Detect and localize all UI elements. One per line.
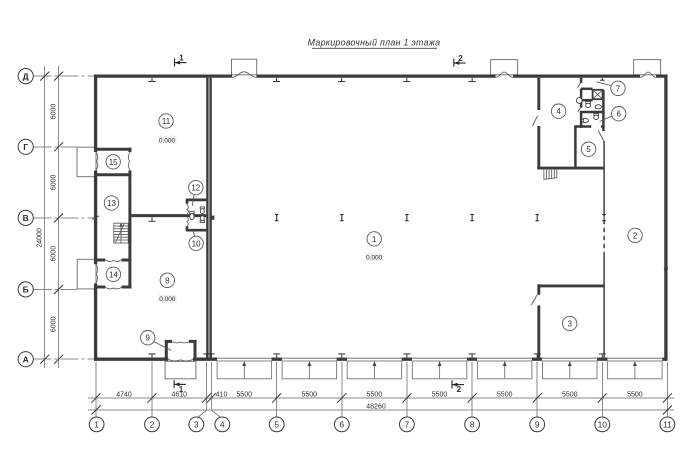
- svg-text:0.000: 0.000: [159, 137, 176, 144]
- svg-text:0.000: 0.000: [159, 296, 176, 303]
- svg-text:6000: 6000: [51, 246, 58, 262]
- svg-text:9: 9: [535, 420, 540, 430]
- svg-text:3: 3: [567, 320, 572, 329]
- svg-text:9: 9: [145, 334, 150, 343]
- svg-text:5500: 5500: [627, 392, 643, 399]
- svg-text:1: 1: [372, 235, 377, 244]
- svg-text:10: 10: [598, 420, 608, 430]
- svg-text:6000: 6000: [51, 316, 58, 332]
- svg-text:Г: Г: [23, 142, 28, 152]
- svg-text:4740: 4740: [116, 392, 132, 399]
- svg-text:2: 2: [457, 385, 462, 394]
- svg-text:5500: 5500: [302, 392, 318, 399]
- svg-text:7: 7: [405, 420, 410, 430]
- svg-text:10: 10: [192, 239, 201, 248]
- svg-text:2: 2: [633, 231, 638, 240]
- svg-text:11: 11: [162, 117, 171, 126]
- svg-text:В: В: [23, 213, 29, 223]
- svg-text:5500: 5500: [432, 392, 448, 399]
- svg-text:11: 11: [663, 420, 672, 430]
- svg-text:4: 4: [556, 107, 561, 116]
- svg-text:13: 13: [107, 199, 116, 208]
- svg-text:14: 14: [109, 270, 118, 279]
- svg-text:24000: 24000: [37, 228, 44, 248]
- svg-text:Д: Д: [23, 71, 29, 81]
- svg-text:4: 4: [220, 420, 225, 430]
- svg-text:48260: 48260: [366, 404, 386, 411]
- svg-text:3: 3: [194, 420, 199, 430]
- svg-text:5: 5: [586, 145, 591, 154]
- svg-text:А: А: [23, 355, 29, 365]
- svg-text:5500: 5500: [497, 392, 513, 399]
- svg-text:12: 12: [191, 184, 200, 193]
- svg-text:410: 410: [216, 392, 228, 399]
- svg-text:1: 1: [94, 420, 99, 430]
- svg-text:6000: 6000: [51, 104, 58, 120]
- svg-text:5500: 5500: [367, 392, 383, 399]
- svg-text:7: 7: [616, 84, 621, 93]
- svg-text:8: 8: [165, 276, 170, 285]
- svg-text:5500: 5500: [562, 392, 578, 399]
- svg-text:15: 15: [109, 158, 118, 167]
- svg-text:2: 2: [150, 420, 155, 430]
- svg-text:6000: 6000: [51, 175, 58, 191]
- svg-text:5: 5: [274, 420, 279, 430]
- svg-text:6: 6: [616, 110, 621, 119]
- svg-text:1: 1: [179, 385, 184, 394]
- svg-text:2: 2: [458, 54, 463, 63]
- svg-text:8: 8: [470, 420, 475, 430]
- svg-text:Маркировочный план 1 этажа: Маркировочный план 1 этажа: [308, 38, 441, 48]
- svg-text:Б: Б: [23, 285, 29, 295]
- svg-text:1: 1: [179, 54, 184, 63]
- svg-text:0.000: 0.000: [366, 255, 383, 262]
- svg-text:6: 6: [339, 420, 344, 430]
- svg-text:5500: 5500: [236, 392, 252, 399]
